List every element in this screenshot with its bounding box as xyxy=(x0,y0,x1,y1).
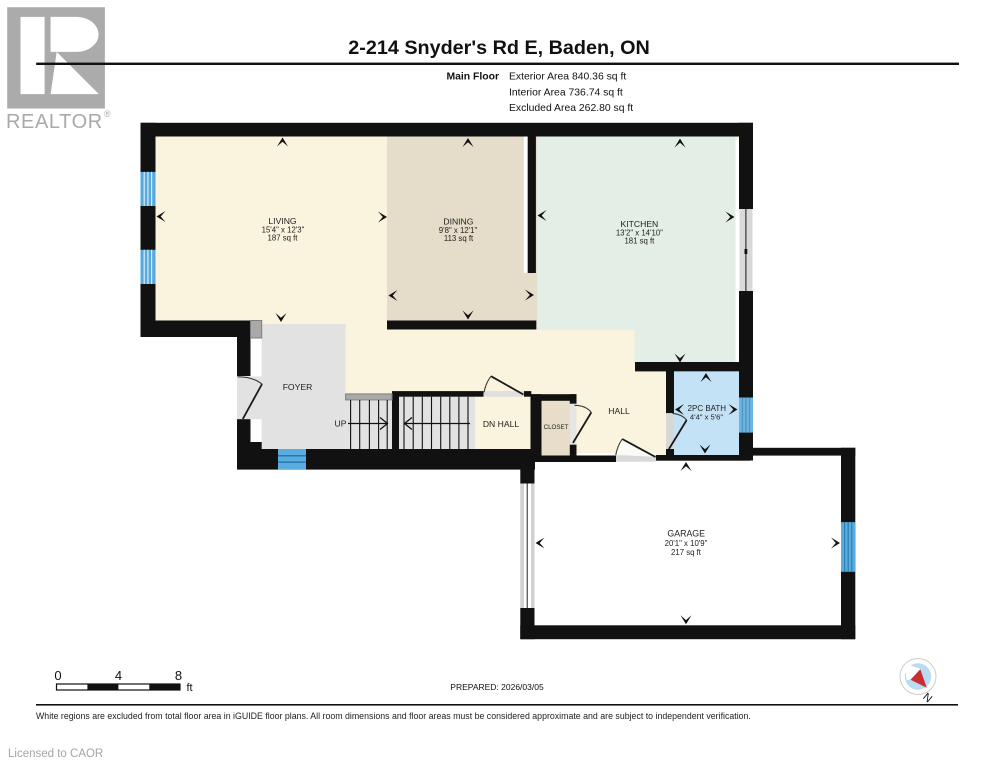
svg-text:CLOSET: CLOSET xyxy=(544,424,569,431)
svg-text:UP: UP xyxy=(335,419,347,429)
svg-text:8: 8 xyxy=(175,668,182,683)
svg-text:20'1" x 10'9": 20'1" x 10'9" xyxy=(665,539,708,548)
svg-text:217 sq ft: 217 sq ft xyxy=(671,548,702,557)
svg-text:HALL: HALL xyxy=(608,406,630,416)
svg-text:White regions are excluded fro: White regions are excluded from total fl… xyxy=(36,711,751,721)
svg-text:PREPARED: 2026/03/05: PREPARED: 2026/03/05 xyxy=(450,682,544,692)
svg-text:ft: ft xyxy=(187,682,193,694)
svg-text:REALTOR: REALTOR xyxy=(6,111,103,133)
svg-text:Main Floor: Main Floor xyxy=(446,72,499,83)
svg-text:2-214 Snyder's Rd E, Baden, ON: 2-214 Snyder's Rd E, Baden, ON xyxy=(348,37,650,59)
svg-text:GARAGE: GARAGE xyxy=(667,529,705,539)
svg-text:181 sq ft: 181 sq ft xyxy=(624,236,655,245)
svg-text:4: 4 xyxy=(115,668,122,683)
svg-text:®: ® xyxy=(104,109,111,119)
svg-text:Excluded Area 262.80 sq ft: Excluded Area 262.80 sq ft xyxy=(509,103,633,114)
svg-text:Interior Area 736.74 sq ft: Interior Area 736.74 sq ft xyxy=(509,87,623,98)
svg-text:4'4" x 5'6": 4'4" x 5'6" xyxy=(690,412,724,421)
svg-text:DN HALL: DN HALL xyxy=(483,419,520,429)
svg-text:Exterior Area 840.36 sq ft: Exterior Area 840.36 sq ft xyxy=(509,72,626,83)
svg-text:0: 0 xyxy=(54,668,61,683)
svg-text:113 sq ft: 113 sq ft xyxy=(444,234,474,243)
svg-text:187 sq ft: 187 sq ft xyxy=(268,234,299,243)
svg-text:FOYER: FOYER xyxy=(283,382,313,392)
svg-text:Licensed to CAOR: Licensed to CAOR xyxy=(8,748,103,760)
